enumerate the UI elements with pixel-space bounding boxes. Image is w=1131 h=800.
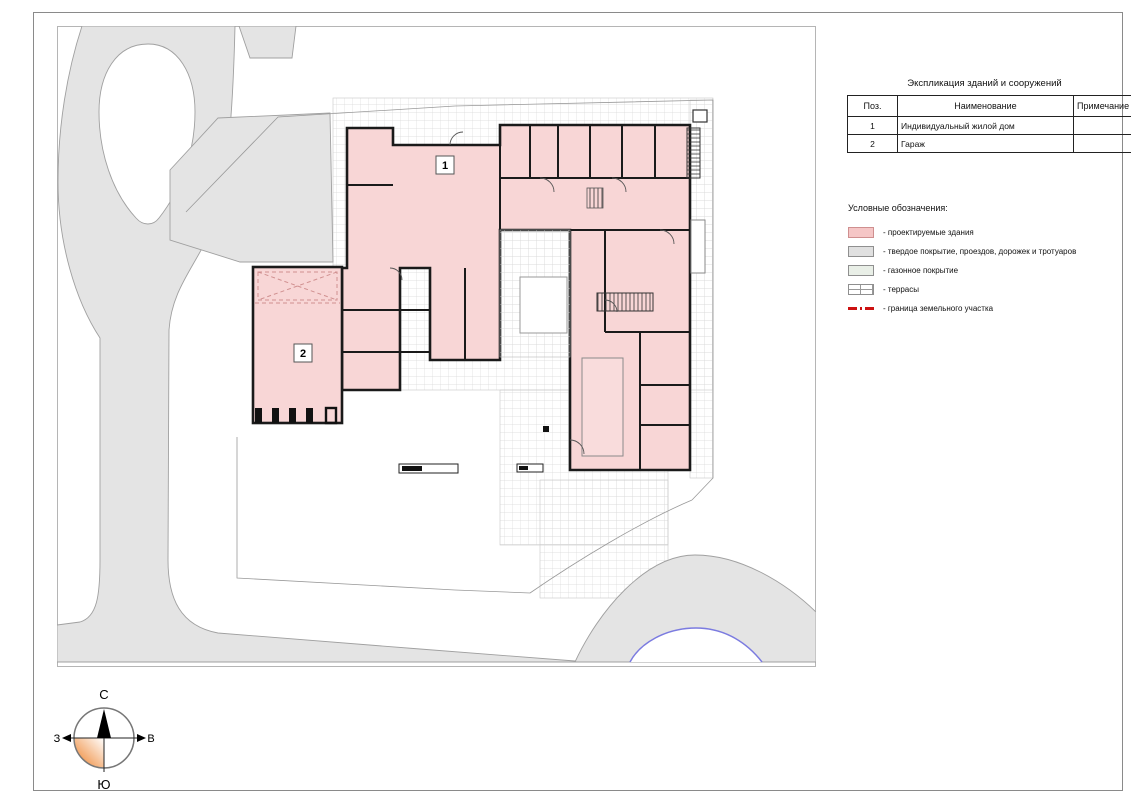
site-plan: 1 2 xyxy=(57,26,816,667)
balcony xyxy=(691,220,705,273)
west-arrow-icon xyxy=(62,734,71,742)
compass-south-label: Ю xyxy=(97,777,110,791)
legend-item: - проектируемые здания xyxy=(848,223,1128,242)
legend-item-label: - граница земельного участка xyxy=(883,304,993,313)
legend-item: - террасы xyxy=(848,280,1128,299)
drawing-page: { "table": { "title": "Экспликация здани… xyxy=(0,0,1131,800)
legend-item: - граница земельного участка xyxy=(848,299,1128,318)
legend-item: - твердое покрытие, проездов, дорожек и … xyxy=(848,242,1128,261)
legend-block: Условные обозначения: - проектируемые зд… xyxy=(848,203,1128,318)
table-row: 1 Индивидуальный жилой дом xyxy=(848,117,1131,135)
legend-item-label: - твердое покрытие, проездов, дорожек и … xyxy=(883,247,1076,256)
building-1-label: 1 xyxy=(442,160,448,172)
pool xyxy=(582,358,623,456)
explication-block: Экспликация зданий и сооружений Поз. Наи… xyxy=(847,78,1122,153)
row2-name: Гараж xyxy=(898,135,1074,153)
explication-table: Поз. Наименование Примечание 1 Индивидуа… xyxy=(847,95,1131,153)
column xyxy=(543,426,549,432)
legend-item-label: - проектируемые здания xyxy=(883,228,974,237)
compass-east-label: В xyxy=(147,733,154,745)
stairs-icon xyxy=(597,293,653,311)
col-note: Примечание xyxy=(1074,96,1131,117)
legend-item-label: - газонное покрытие xyxy=(883,266,958,275)
table-row: 2 Гараж xyxy=(848,135,1131,153)
swatch-terrace-icon xyxy=(848,284,874,295)
building-2-label: 2 xyxy=(300,348,306,360)
stairs-icon xyxy=(587,188,603,208)
compass-north-label: С xyxy=(99,687,108,702)
courtyard-inner xyxy=(520,277,567,333)
compass-west-label: З xyxy=(54,733,61,745)
row2-pos: 2 xyxy=(848,135,898,153)
swatch-boundary-line-icon xyxy=(848,307,874,310)
east-arrow-icon xyxy=(137,734,146,742)
legend-title: Условные обозначения: xyxy=(848,203,1128,213)
stairs-icon xyxy=(687,128,700,178)
compass-rose: С Ю З В xyxy=(52,686,162,791)
row1-note xyxy=(1074,117,1131,135)
explication-title: Экспликация зданий и сооружений xyxy=(847,78,1122,89)
row1-name: Индивидуальный жилой дом xyxy=(898,117,1074,135)
swatch-lawn-icon xyxy=(848,265,874,276)
building-2: 2 xyxy=(253,267,342,423)
col-name: Наименование xyxy=(898,96,1074,117)
legend-item: - газонное покрытие xyxy=(848,261,1128,280)
legend-item-label: - террасы xyxy=(883,285,919,294)
row1-pos: 1 xyxy=(848,117,898,135)
north-needle-icon xyxy=(97,709,111,738)
swatch-buildings-icon xyxy=(848,227,874,238)
swatch-hard-cover-icon xyxy=(848,246,874,257)
col-pos: Поз. xyxy=(848,96,898,117)
row2-note xyxy=(1074,135,1131,153)
table-header-row: Поз. Наименование Примечание xyxy=(848,96,1131,117)
roof-box xyxy=(693,110,707,122)
